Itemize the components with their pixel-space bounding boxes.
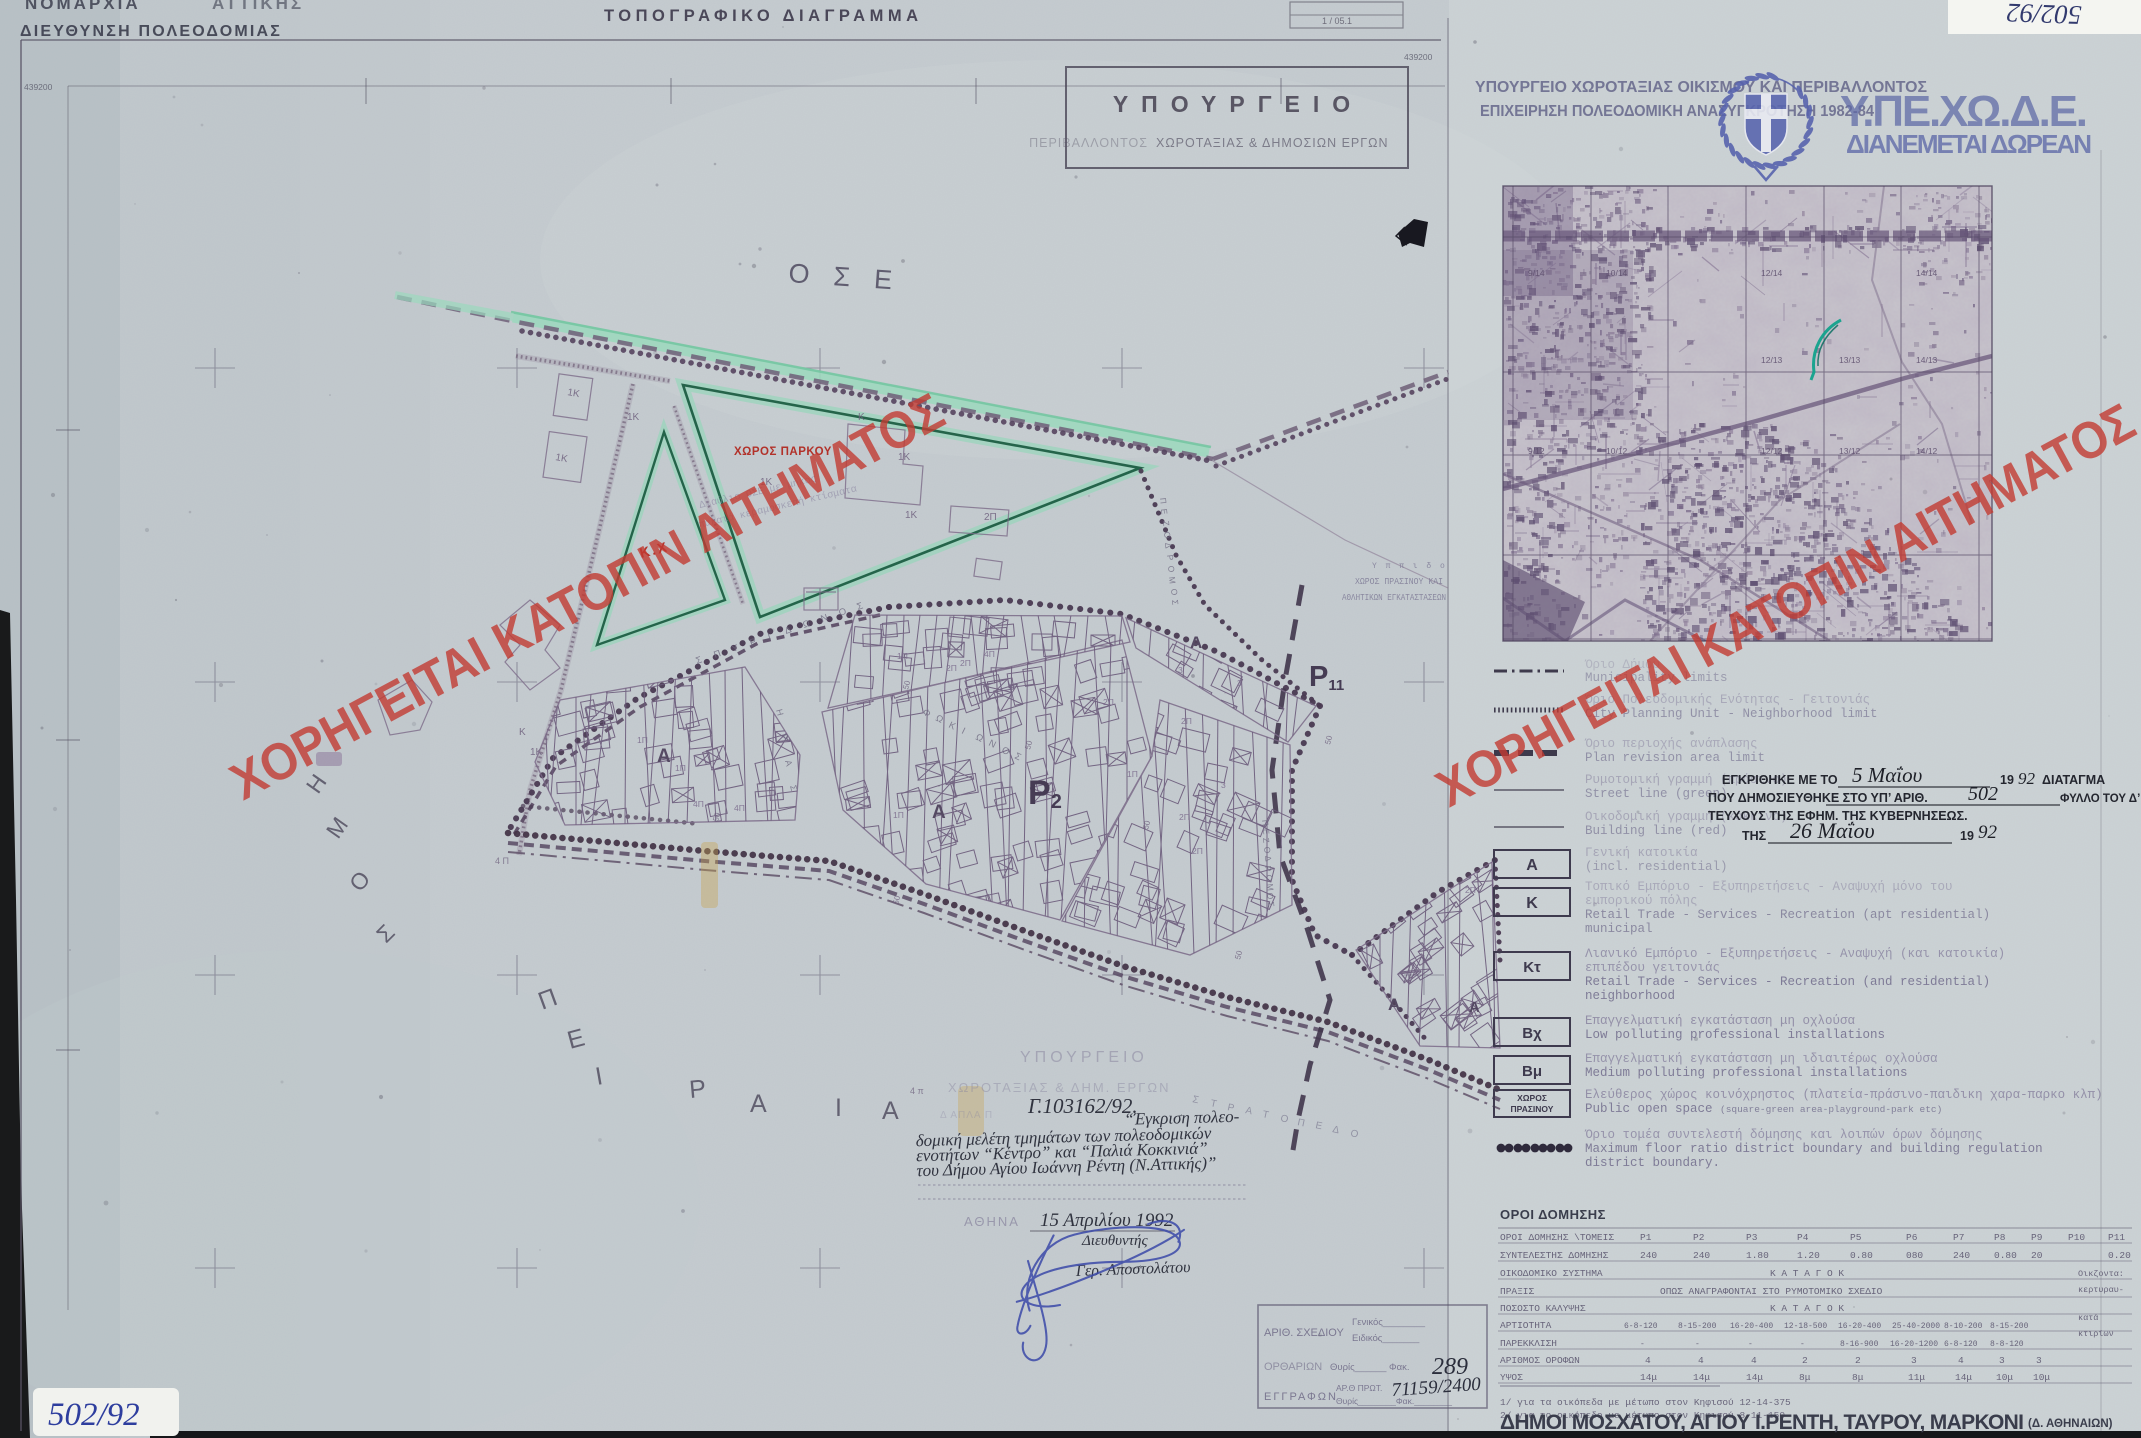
svg-text:Ζ: Ζ bbox=[1261, 837, 1271, 843]
svg-text:16-20-400: 16-20-400 bbox=[1838, 1322, 1881, 1331]
svg-text:ΑΘΗΝΑ: ΑΘΗΝΑ bbox=[964, 1214, 1020, 1229]
svg-text:ΝΟΜΑΡΧΙΑ: ΝΟΜΑΡΧΙΑ bbox=[25, 0, 141, 13]
svg-text:3: 3 bbox=[1911, 1355, 1917, 1366]
svg-text:1 / 05.1: 1 / 05.1 bbox=[1322, 16, 1352, 26]
svg-text:(square-green area-playground-: (square-green area-playground-park etc) bbox=[1720, 1104, 1942, 1115]
svg-text:16-20-1200: 16-20-1200 bbox=[1890, 1340, 1938, 1349]
svg-text:Α: Α bbox=[882, 1097, 899, 1125]
svg-text:3: 3 bbox=[1999, 1355, 2005, 1366]
svg-text:Public open space: Public open space bbox=[1585, 1102, 1713, 1116]
svg-text:10/14: 10/14 bbox=[1606, 268, 1628, 278]
svg-text:2Π: 2Π bbox=[1192, 846, 1203, 856]
svg-text:Α: Α bbox=[1388, 995, 1400, 1014]
svg-text:1Κ: 1Κ bbox=[566, 387, 580, 400]
svg-text:ΤΗΣ: ΤΗΣ bbox=[1742, 829, 1767, 843]
svg-text:1Π: 1Π bbox=[675, 763, 686, 773]
svg-text:P1: P1 bbox=[1640, 1232, 1652, 1243]
svg-text:1.20: 1.20 bbox=[1797, 1250, 1820, 1261]
svg-text:ΥΠΟΥΡΓΕΙΟ: ΥΠΟΥΡΓΕΙΟ bbox=[1113, 91, 1363, 117]
svg-text:8-16-900: 8-16-900 bbox=[1840, 1340, 1879, 1349]
svg-text:439200: 439200 bbox=[24, 82, 53, 92]
svg-text:1Π: 1Π bbox=[1127, 769, 1138, 779]
svg-text:-: - bbox=[1695, 1340, 1700, 1349]
svg-text:Ρ: Ρ bbox=[688, 1075, 707, 1104]
svg-text:Street line (green): Street line (green) bbox=[1585, 787, 1728, 801]
svg-text:2: 2 bbox=[1855, 1355, 1861, 1366]
svg-text:ΕΓΓΡΑΦΩΝ: ΕΓΓΡΑΦΩΝ bbox=[1264, 1391, 1338, 1403]
svg-text:502: 502 bbox=[1968, 783, 1998, 805]
svg-text:Γ.103162/92.: Γ.103162/92. bbox=[1027, 1094, 1138, 1118]
svg-text:ΑΡ.Θ ΠΡΩΤ.: ΑΡ.Θ ΠΡΩΤ. bbox=[1336, 1383, 1382, 1393]
svg-text:2Π: 2Π bbox=[960, 658, 971, 668]
svg-text:P5: P5 bbox=[1850, 1232, 1862, 1243]
svg-text:14μ: 14μ bbox=[1693, 1372, 1710, 1383]
svg-text:P10: P10 bbox=[2068, 1232, 2085, 1243]
svg-text:Βμ: Βμ bbox=[1522, 1063, 1542, 1080]
svg-text:2: 2 bbox=[1802, 1355, 1808, 1366]
svg-text:ΑΘΛΗΤΙΚΩΝ ΕΓΚΑΤΑΣΤΑΣΕΩΝ: ΑΘΛΗΤΙΚΩΝ ΕΓΚΑΤΑΣΤΑΣΕΩΝ bbox=[1342, 592, 1446, 603]
svg-text:240: 240 bbox=[1693, 1250, 1710, 1261]
svg-text:8-15-200: 8-15-200 bbox=[1990, 1322, 2029, 1331]
svg-text:26 Μαΐου: 26 Μαΐου bbox=[1790, 818, 1875, 843]
svg-text:Ελεύθερος χώρος κοινόχρηστος (: Ελεύθερος χώρος κοινόχρηστος (πλατεία-πρ… bbox=[1585, 1088, 2103, 1102]
svg-text:Βχ: Βχ bbox=[1522, 1025, 1542, 1042]
svg-text:10μ: 10μ bbox=[1996, 1372, 2013, 1383]
svg-text:Α: Α bbox=[750, 1090, 767, 1118]
svg-text:κατά: κατά bbox=[2078, 1313, 2098, 1323]
svg-text:Κ: Κ bbox=[1526, 895, 1538, 912]
svg-text:ΔΗΜΟΙ ΜΟΣΧΑΤΟΥ, ΑΓΙΟΥ Ι.ΡΕΝΤ: ΔΗΜΟΙ ΜΟΣΧΑΤΟΥ, ΑΓΙΟΥ Ι.ΡΕΝΤΗ, ΤΑΥΡΟΥ, Μ… bbox=[1500, 1411, 2025, 1434]
svg-text:Γενική κατοικία: Γενική κατοικία bbox=[1585, 846, 1698, 860]
svg-text:Plan revision area limit: Plan revision area limit bbox=[1585, 751, 1765, 765]
svg-text:ΧΩΡΟΤΑΞΙΑΣ & ΔΗΜΟΣΙΩΝ ΕΡΓΩΝ: ΧΩΡΟΤΑΞΙΑΣ & ΔΗΜΟΣΙΩΝ ΕΡΓΩΝ bbox=[1156, 136, 1389, 150]
svg-text:14/13: 14/13 bbox=[1916, 355, 1938, 365]
svg-text:8μ: 8μ bbox=[1799, 1372, 1811, 1383]
svg-text:4 Π: 4 Π bbox=[495, 856, 509, 866]
svg-text:κτιρίων: κτιρίων bbox=[2078, 1329, 2114, 1339]
svg-text:10/12: 10/12 bbox=[1606, 446, 1628, 456]
svg-text:district boundary.: district boundary. bbox=[1585, 1156, 1720, 1170]
svg-text:14/12: 14/12 bbox=[1916, 446, 1938, 456]
svg-text:P8: P8 bbox=[1994, 1232, 2006, 1243]
svg-text:ΑΡΙΘΜΟΣ ΟΡΟΦΩΝ: ΑΡΙΘΜΟΣ ΟΡΟΦΩΝ bbox=[1500, 1355, 1580, 1366]
svg-text:Low polluting professional ins: Low polluting professional installations bbox=[1585, 1028, 1885, 1042]
svg-text:ΟΙΚΟΔΟΜΙΚΟ ΣΥΣΤΗΜΑ: ΟΙΚΟΔΟΜΙΚΟ ΣΥΣΤΗΜΑ bbox=[1500, 1268, 1603, 1279]
svg-text:κερτυραυ-: κερτυραυ- bbox=[2078, 1285, 2124, 1295]
svg-text:1Κ: 1Κ bbox=[554, 452, 568, 465]
svg-text:ΔΙΑΝΕΜΕΤΑΙ ΔΩΡΕΑΝ: ΔΙΑΝΕΜΕΤΑΙ ΔΩΡΕΑΝ bbox=[1846, 129, 2092, 159]
svg-text:1/ για τα οικόπεδα με μέτωπο: 1/ για τα οικόπεδα με μέτωπο στον Κηφισο… bbox=[1500, 1397, 1791, 1408]
svg-text:Α: Α bbox=[657, 746, 671, 767]
svg-text:Οικζοντα:: Οικζοντα: bbox=[2078, 1269, 2124, 1279]
svg-text:6-8-120: 6-8-120 bbox=[1624, 1322, 1658, 1331]
svg-text:4Π: 4Π bbox=[984, 649, 995, 659]
svg-text:(Δ. ΑΘΗΝΑΙΩΝ): (Δ. ΑΘΗΝΑΙΩΝ) bbox=[2028, 1418, 2113, 1430]
svg-text:Maximum floor ratio district b: Maximum floor ratio district boundary an… bbox=[1585, 1142, 2043, 1156]
svg-text:12/13: 12/13 bbox=[1761, 355, 1783, 365]
svg-text:8-8-120: 8-8-120 bbox=[1990, 1340, 2024, 1349]
svg-text:9/14: 9/14 bbox=[1528, 268, 1545, 278]
svg-text:6-8-120: 6-8-120 bbox=[1944, 1340, 1978, 1349]
svg-text:-: - bbox=[1800, 1340, 1805, 1349]
svg-text:8μ: 8μ bbox=[1852, 1372, 1864, 1383]
svg-text:2Π: 2Π bbox=[946, 663, 957, 673]
svg-text:ΠΟΥ ΔΗΜΟΣΙΕΥΘΗΚΕ ΣΤΟ ΥΠ’ ΑΡΙΘ.: ΠΟΥ ΔΗΜΟΣΙΕΥΘΗΚΕ ΣΤΟ ΥΠ’ ΑΡΙΘ. bbox=[1708, 791, 1928, 805]
svg-text:Διευθυντής: Διευθυντής bbox=[1081, 1233, 1148, 1249]
svg-text:Ειδικός_______: Ειδικός_______ bbox=[1352, 1333, 1420, 1344]
svg-text:ΠΟΣΟΣΤΟ ΚΑΛΥΨΗΣ: ΠΟΣΟΣΤΟ ΚΑΛΥΨΗΣ bbox=[1500, 1303, 1586, 1314]
svg-text:Medium polluting professional: Medium polluting professional installati… bbox=[1585, 1066, 1908, 1080]
svg-text:13/13: 13/13 bbox=[1839, 355, 1861, 365]
svg-text:Α: Α bbox=[932, 802, 946, 823]
svg-text:Σ: Σ bbox=[1170, 599, 1180, 605]
svg-text:Κ Α Τ Α Γ Ο Κ: Κ Α Τ Α Γ Ο Κ bbox=[1770, 1303, 1844, 1314]
svg-text:Όριο τομέα συντελεστή δόμησης: Όριο τομέα συντελεστή δόμησης και λοιπών… bbox=[1584, 1128, 1983, 1142]
svg-text:502/92: 502/92 bbox=[48, 1397, 140, 1433]
svg-text:ΠΑΡΕΚΚΛΙΣΗ: ΠΑΡΕΚΚΛΙΣΗ bbox=[1500, 1338, 1557, 1349]
svg-text:ΥΠΟΥΡΓΕΙΟ: ΥΠΟΥΡΓΕΙΟ bbox=[1020, 1049, 1148, 1066]
svg-text:ΣΥΝΤΕΛΕΣΤΗΣ ΔΟΜΗΣΗΣ: ΣΥΝΤΕΛΕΣΤΗΣ ΔΟΜΗΣΗΣ bbox=[1500, 1250, 1609, 1261]
svg-text:ΥΨΟΣ: ΥΨΟΣ bbox=[1500, 1372, 1523, 1383]
svg-text:Μ: Μ bbox=[1167, 576, 1178, 584]
svg-text:Α: Α bbox=[1526, 857, 1538, 874]
svg-text:92: 92 bbox=[1978, 822, 1998, 843]
svg-text:19: 19 bbox=[1960, 829, 1974, 843]
svg-text:ΕΓΚΡΙΘΗΚΕ ΜΕ ΤΟ: ΕΓΚΡΙΘΗΚΕ ΜΕ ΤΟ bbox=[1722, 773, 1838, 787]
svg-text:4Π: 4Π bbox=[734, 803, 745, 813]
svg-text:240: 240 bbox=[1640, 1250, 1657, 1261]
svg-text:080: 080 bbox=[1906, 1250, 1923, 1261]
svg-text:-: - bbox=[1640, 1340, 1645, 1349]
svg-text:-: - bbox=[1748, 1340, 1753, 1349]
svg-text:4: 4 bbox=[1698, 1355, 1704, 1366]
svg-text:14μ: 14μ bbox=[1955, 1372, 1972, 1383]
svg-text:12/14: 12/14 bbox=[1761, 268, 1783, 278]
svg-text:4: 4 bbox=[1645, 1355, 1651, 1366]
svg-text:1Π: 1Π bbox=[893, 810, 904, 820]
svg-text:municipal: municipal bbox=[1585, 922, 1653, 936]
svg-text:P3: P3 bbox=[1746, 1232, 1758, 1243]
svg-text:P9: P9 bbox=[2031, 1232, 2043, 1243]
svg-text:8-15-200: 8-15-200 bbox=[1678, 1322, 1717, 1331]
svg-text:ΧΩΡΟΤΑΞΙΑΣ & ΔΗΜ. ΕΡΓΩΝ: ΧΩΡΟΤΑΞΙΑΣ & ΔΗΜ. ΕΡΓΩΝ bbox=[948, 1080, 1171, 1095]
svg-text:Γενικός________: Γενικός________ bbox=[1352, 1317, 1426, 1328]
svg-text:1Κ: 1Κ bbox=[627, 412, 640, 423]
svg-text:92: 92 bbox=[2018, 769, 2036, 788]
svg-text:0.80: 0.80 bbox=[1850, 1250, 1873, 1261]
svg-text:439200: 439200 bbox=[1404, 52, 1433, 62]
svg-text:0.80: 0.80 bbox=[1994, 1250, 2017, 1261]
svg-text:13/12: 13/12 bbox=[1839, 446, 1861, 456]
svg-text:P11: P11 bbox=[2108, 1232, 2125, 1243]
svg-text:neighborhood: neighborhood bbox=[1585, 989, 1675, 1003]
svg-text:5 Μαΐου: 5 Μαΐου bbox=[1852, 763, 1922, 787]
svg-text:4: 4 bbox=[1751, 1355, 1757, 1366]
svg-text:4Π: 4Π bbox=[693, 799, 704, 809]
svg-text:Λιανικό Εμπόριο - Εξυπηρετήσει: Λιανικό Εμπόριο - Εξυπηρετήσεις - Αναψυχ… bbox=[1585, 947, 2005, 961]
svg-text:3: 3 bbox=[1178, 665, 1183, 675]
svg-text:ΟΠΩΣ ΑΝΑΓΡΑΦΟΝΤΑΙ ΣΤΟ ΡΥΜΟΤΟΜΙ: ΟΠΩΣ ΑΝΑΓΡΑΦΟΝΤΑΙ ΣΤΟ ΡΥΜΟΤΟΜΙΚΟ ΣΧΕΔΙΟ bbox=[1660, 1286, 1883, 1297]
svg-text:ΧΩΡΟΣ ΠΡΑΣΙΝΟΥ ΚΑΙ: ΧΩΡΟΣ ΠΡΑΣΙΝΟΥ ΚΑΙ bbox=[1355, 576, 1443, 587]
svg-text:ΔΙΕΥΘΥΝΣΗ ΠΟΛΕΟΔΟΜΙΑΣ: ΔΙΕΥΘΥΝΣΗ ΠΟΛΕΟΔΟΜΙΑΣ bbox=[20, 23, 282, 40]
svg-text:Δ ΑΠΛΑ Π: Δ ΑΠΛΑ Π bbox=[940, 1110, 993, 1121]
svg-text:240: 240 bbox=[1953, 1250, 1970, 1261]
svg-text:2Π: 2Π bbox=[1181, 716, 1192, 726]
svg-text:25-40-2000: 25-40-2000 bbox=[1892, 1322, 1940, 1331]
svg-text:Όριο περιοχής ανάπλασης: Όριο περιοχής ανάπλασης bbox=[1584, 737, 1758, 751]
svg-text:14μ: 14μ bbox=[1640, 1372, 1657, 1383]
svg-text:ΤΟΠΟΓΡΑΦΙΚΟ ΔΙΑΓΡΑΜΜΑ: ΤΟΠΟΓΡΑΦΙΚΟ ΔΙΑΓΡΑΜΜΑ bbox=[604, 7, 923, 25]
svg-text:Θυρίς______ Φακ.: Θυρίς______ Φακ. bbox=[1330, 1362, 1409, 1373]
svg-text:Ζ: Ζ bbox=[1161, 520, 1171, 526]
svg-text:ΑΡΙΘ. ΣΧΕΔΙΟΥ: ΑΡΙΘ. ΣΧΕΔΙΟΥ bbox=[1264, 1327, 1344, 1339]
svg-text:ΟΡΟΙ ΔΟΜΗΣΗΣ \ΤΟΜΕΙΣ: ΟΡΟΙ ΔΟΜΗΣΗΣ \ΤΟΜΕΙΣ bbox=[1500, 1232, 1614, 1243]
svg-text:Ι: Ι bbox=[835, 1094, 842, 1122]
svg-text:3: 3 bbox=[2036, 1355, 2042, 1366]
svg-text:2Π: 2Π bbox=[984, 512, 997, 523]
svg-text:Τοπικό Εμπόριο - Εξυπηρετήσεις: Τοπικό Εμπόριο - Εξυπηρετήσεις - Αναψυχή… bbox=[1585, 880, 1953, 894]
svg-text:2Π: 2Π bbox=[1179, 812, 1190, 822]
svg-text:4: 4 bbox=[1958, 1355, 1964, 1366]
svg-text:12/12: 12/12 bbox=[1761, 446, 1783, 456]
svg-text:εμπορικού πόλης: εμπορικού πόλης bbox=[1585, 894, 1698, 908]
svg-text:ΠΕΡΙΒΑΛΛΟΝΤΟΣ: ΠΕΡΙΒΑΛΛΟΝΤΟΣ bbox=[1029, 136, 1148, 150]
svg-text:Α: Α bbox=[1469, 999, 1480, 1016]
svg-text:Επαγγελματική εγκατάσταση μη ο: Επαγγελματική εγκατάσταση μη οχλούσα bbox=[1585, 1014, 1856, 1028]
svg-text:10μ: 10μ bbox=[2033, 1372, 2050, 1383]
svg-text:P4: P4 bbox=[1797, 1232, 1809, 1243]
svg-text:2Π: 2Π bbox=[1103, 697, 1114, 707]
svg-text:Retail Trade - Services - Recr: Retail Trade - Services - Recreation (ap… bbox=[1585, 908, 1990, 922]
svg-text:12-18-500: 12-18-500 bbox=[1784, 1322, 1827, 1331]
svg-text:Α: Α bbox=[1190, 633, 1202, 652]
svg-text:Π: Π bbox=[1158, 497, 1169, 504]
svg-text:ΑΤΤΙΚΗΣ: ΑΤΤΙΚΗΣ bbox=[212, 0, 304, 13]
svg-text:2Π: 2Π bbox=[1465, 885, 1476, 895]
svg-text:Π: Π bbox=[1260, 819, 1271, 826]
svg-text:Κτ: Κτ bbox=[1523, 959, 1541, 976]
svg-text:ΟΡΟΙ ΔΟΜΗΣΗΣ: ΟΡΟΙ ΔΟΜΗΣΗΣ bbox=[1500, 1207, 1606, 1222]
svg-text:(incl. residential): (incl. residential) bbox=[1585, 860, 1728, 874]
svg-text:502/92: 502/92 bbox=[2006, 0, 2082, 30]
svg-text:11μ: 11μ bbox=[1908, 1372, 1925, 1383]
svg-text:8-10-200: 8-10-200 bbox=[1944, 1322, 1983, 1331]
svg-text:0.20: 0.20 bbox=[2108, 1250, 2131, 1261]
svg-text:ΦΥΛΛΟ ΤΟΥ Δ’: ΦΥΛΛΟ ΤΟΥ Δ’ bbox=[2060, 793, 2140, 805]
svg-text:ΠΡΑΣΙΝΟΥ: ΠΡΑΣΙΝΟΥ bbox=[1511, 1104, 1554, 1114]
svg-text:P2: P2 bbox=[1693, 1232, 1705, 1243]
svg-text:1Κ: 1Κ bbox=[905, 510, 918, 521]
svg-text:Building line (red): Building line (red) bbox=[1585, 824, 1728, 838]
svg-text:P7: P7 bbox=[1953, 1232, 1964, 1243]
svg-text:16-20-400: 16-20-400 bbox=[1730, 1322, 1773, 1331]
svg-text:3: 3 bbox=[1221, 780, 1226, 790]
svg-text:ΕΠΙΧΕΙΡΗΣΗ ΠΟΛΕΟΔΟΜΙΚΗ ΑΝΑΣΥΓΚ: ΕΠΙΧΕΙΡΗΣΗ ΠΟΛΕΟΔΟΜΙΚΗ ΑΝΑΣΥΓΚΡΟΤΗΣΗ 198… bbox=[1480, 103, 1874, 120]
svg-text:ΠΡΑΞΙΣ: ΠΡΑΞΙΣ bbox=[1500, 1286, 1535, 1297]
svg-text:επιπέδου γειτονιάς: επιπέδου γειτονιάς bbox=[1585, 961, 1720, 975]
svg-text:Μ: Μ bbox=[1265, 883, 1276, 891]
svg-text:1Π: 1Π bbox=[897, 651, 908, 661]
svg-text:P6: P6 bbox=[1906, 1232, 1918, 1243]
svg-text:Retail Trade - Services - Recr: Retail Trade - Services - Recreation (an… bbox=[1585, 975, 1990, 989]
svg-text:ΑΡΤΙΟΤΗΤΑ: ΑΡΤΙΟΤΗΤΑ bbox=[1500, 1320, 1552, 1331]
svg-text:ΔΙΑΤΑΓΜΑ: ΔΙΑΤΑΓΜΑ bbox=[2042, 773, 2105, 787]
svg-text:ΧΩΡΟΣ: ΧΩΡΟΣ bbox=[1517, 1093, 1547, 1103]
svg-text:ΟΡΘΑΡΙΩΝ: ΟΡΘΑΡΙΩΝ bbox=[1264, 1361, 1322, 1373]
svg-text:Υ π π ι δ ο: Υ π π ι δ ο bbox=[1372, 562, 1447, 571]
svg-text:4 π: 4 π bbox=[910, 1086, 924, 1096]
svg-text:Κ: Κ bbox=[519, 727, 526, 738]
svg-text:3: 3 bbox=[1237, 678, 1242, 688]
svg-text:Σ: Σ bbox=[1266, 901, 1276, 907]
svg-text:20: 20 bbox=[2031, 1250, 2043, 1261]
svg-text:1Π: 1Π bbox=[637, 735, 648, 745]
svg-text:14/14: 14/14 bbox=[1916, 268, 1938, 278]
svg-text:14μ: 14μ bbox=[1746, 1372, 1763, 1383]
svg-text:Επαγγελματική εγκατάσταση μη ι: Επαγγελματική εγκατάσταση μη ιδιαιτέρως … bbox=[1585, 1052, 1938, 1066]
svg-text:19: 19 bbox=[2000, 773, 2014, 787]
svg-text:1.80: 1.80 bbox=[1746, 1250, 1769, 1261]
svg-text:9/12: 9/12 bbox=[1528, 446, 1545, 456]
svg-text:Κ Α Τ Α Γ Ο Κ: Κ Α Τ Α Γ Ο Κ bbox=[1770, 1268, 1844, 1279]
